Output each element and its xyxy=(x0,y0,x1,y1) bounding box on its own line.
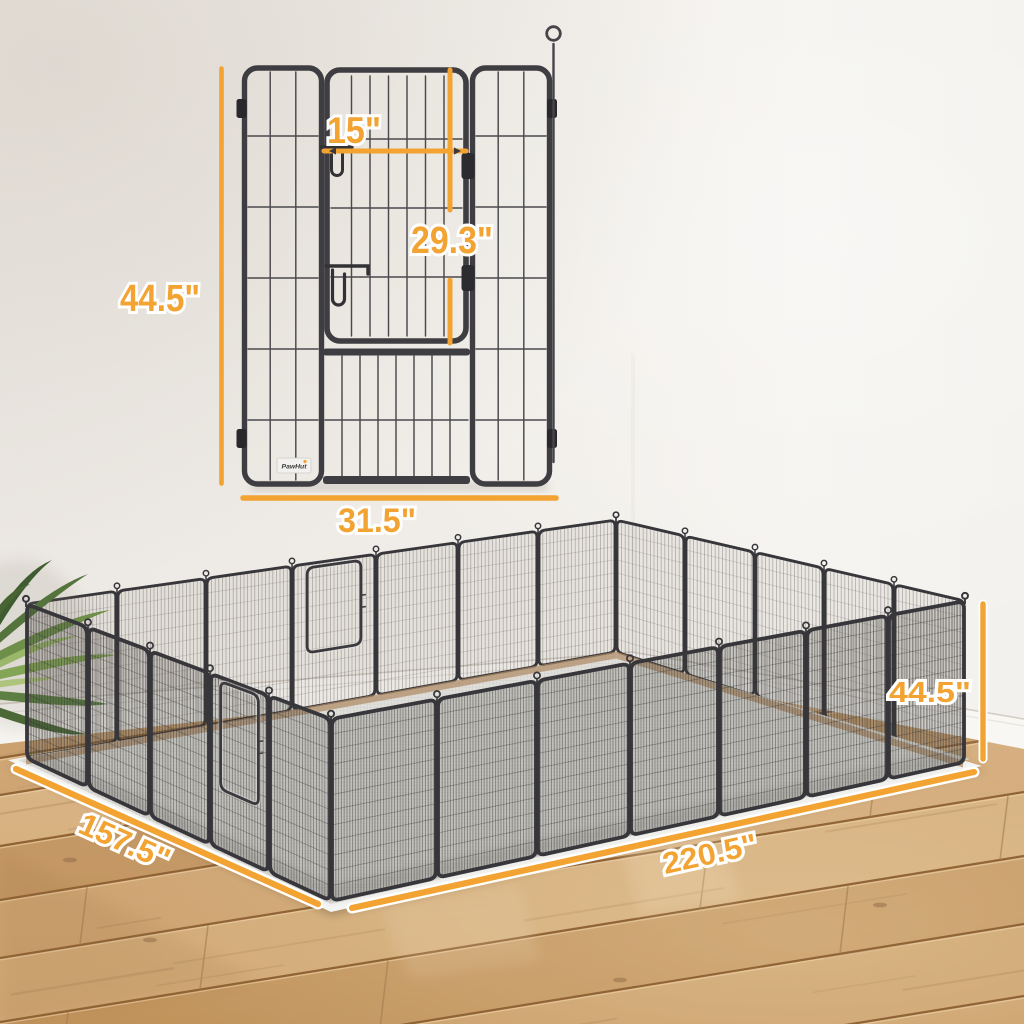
svg-text:PawHut: PawHut xyxy=(282,464,308,471)
svg-text:44.5": 44.5" xyxy=(120,278,200,320)
svg-text:29.3": 29.3" xyxy=(411,220,493,262)
svg-text:44.5": 44.5" xyxy=(889,677,971,709)
svg-text:15": 15" xyxy=(327,110,381,151)
svg-text:31.5": 31.5" xyxy=(338,502,416,540)
